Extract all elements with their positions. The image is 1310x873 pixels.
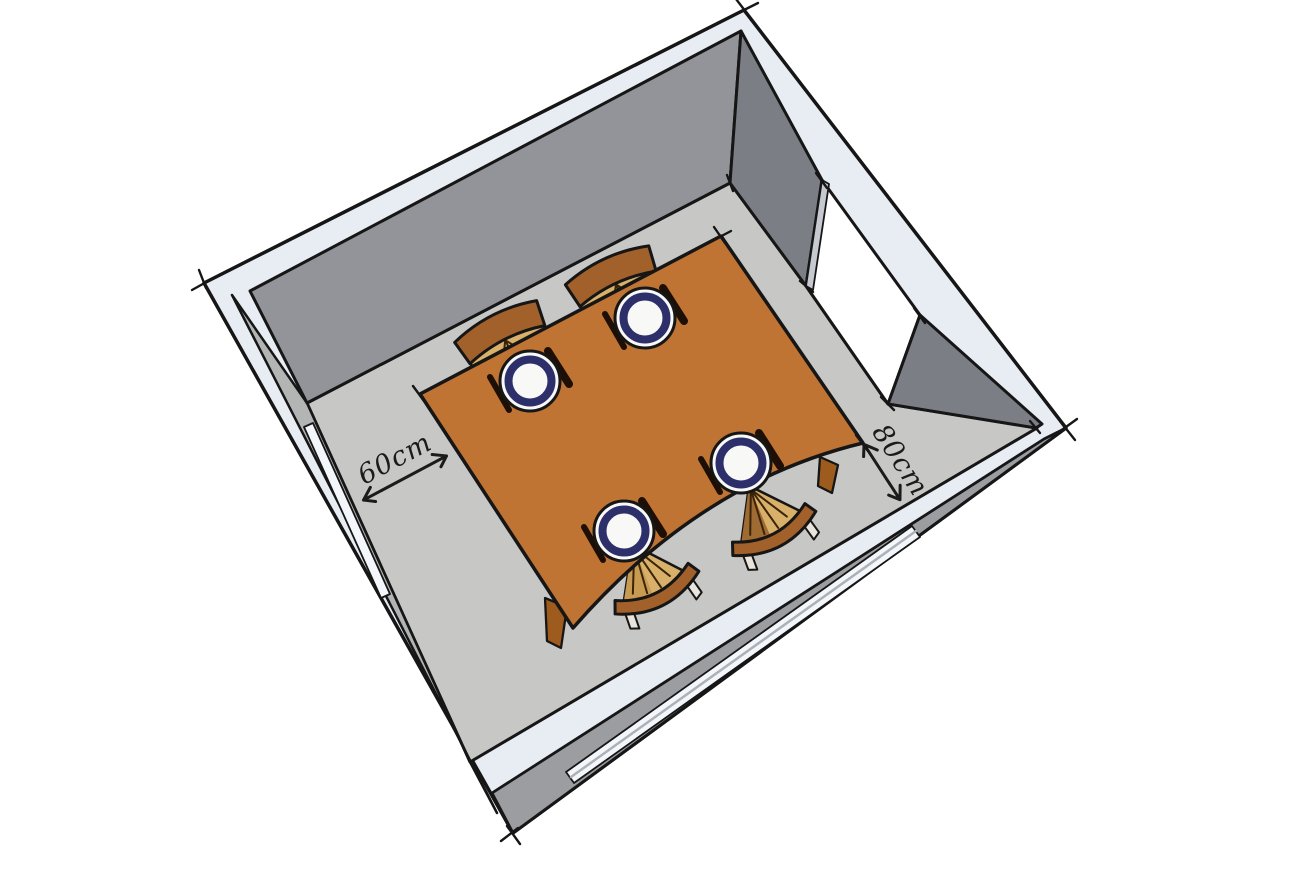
room-sketch-canvas: 60cm 80cm xyxy=(0,0,1310,873)
room-sketch: 60cm 80cm xyxy=(0,0,1310,873)
